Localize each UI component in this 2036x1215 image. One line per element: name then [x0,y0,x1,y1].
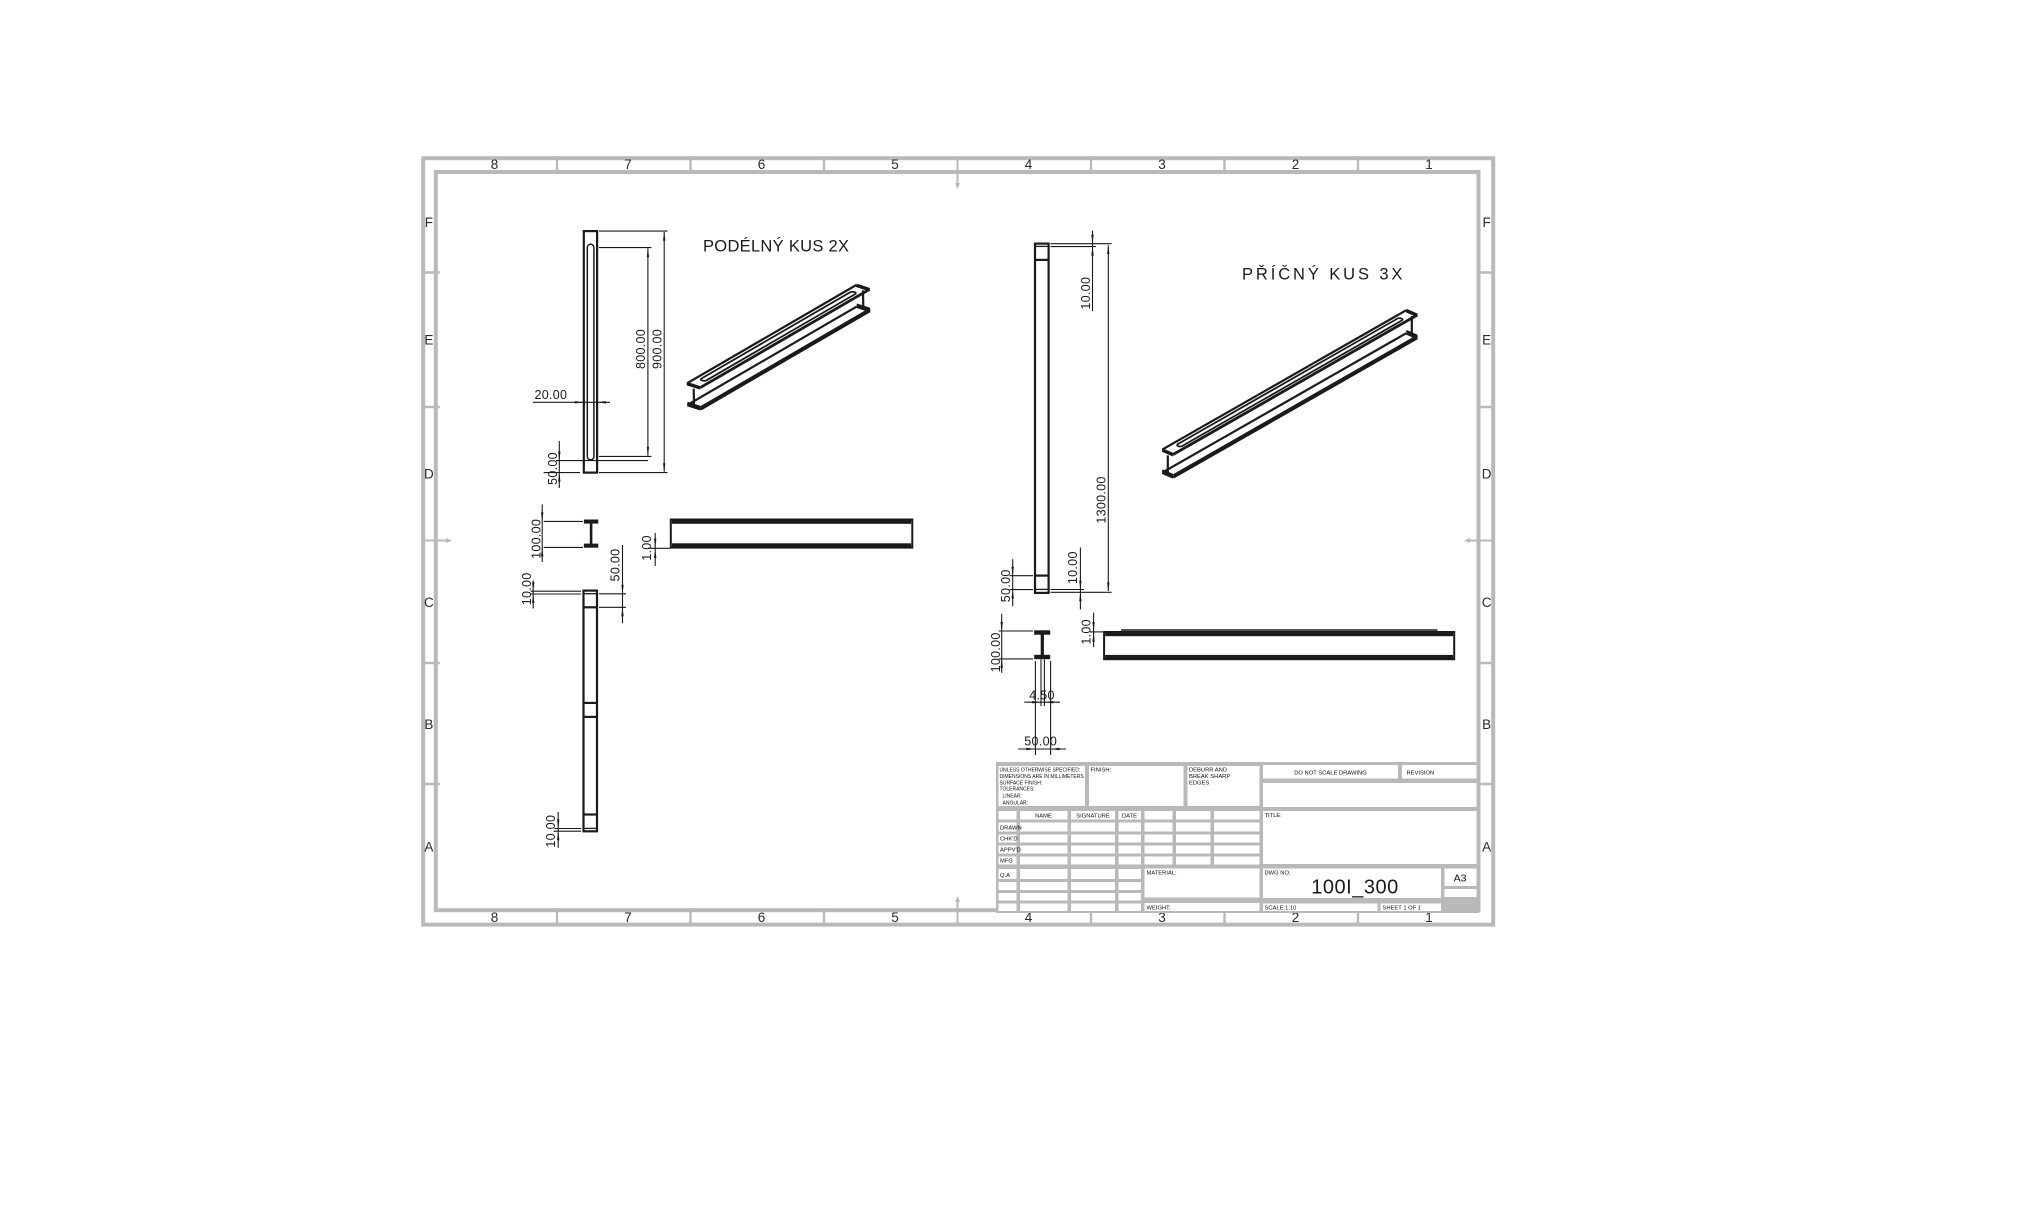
svg-text:B: B [424,717,433,732]
svg-text:UNLESS OTHERWISE SPECIFIED:: UNLESS OTHERWISE SPECIFIED: [1000,768,1081,774]
svg-text:50.00: 50.00 [999,569,1013,602]
svg-text:A: A [1482,839,1491,854]
svg-text:8: 8 [491,910,499,925]
svg-text:1.00: 1.00 [640,535,654,561]
svg-text:APPV'D: APPV'D [1000,847,1021,853]
svg-text:4: 4 [1025,157,1033,172]
svg-text:D: D [424,466,434,481]
svg-text:DATE: DATE [1122,813,1137,819]
svg-text:C: C [1482,595,1492,610]
svg-text:WEIGHT:: WEIGHT: [1147,905,1172,911]
svg-text:B: B [1482,717,1491,732]
svg-text:3: 3 [1158,157,1166,172]
svg-text:5: 5 [891,157,899,172]
svg-text:F: F [425,215,434,230]
svg-text:SHEET 1 OF 1: SHEET 1 OF 1 [1383,905,1422,911]
svg-text:PODÉLNÝ KUS 2X: PODÉLNÝ KUS 2X [703,237,849,256]
svg-text:TOLERANCES:: TOLERANCES: [1000,787,1035,793]
svg-text:6: 6 [758,157,766,172]
svg-text:50.00: 50.00 [546,452,560,485]
svg-text:2: 2 [1292,157,1300,172]
svg-text:E: E [424,332,433,347]
svg-text:REVISION: REVISION [1407,771,1435,777]
svg-text:DWG NO.: DWG NO. [1265,871,1291,877]
svg-text:DEBURR AND: DEBURR AND [1189,768,1227,774]
svg-text:FINISH:: FINISH: [1091,768,1112,774]
svg-text:10.00: 10.00 [544,815,558,848]
svg-text:50.00: 50.00 [608,549,622,582]
svg-text:F: F [1483,215,1492,230]
svg-text:ANGULAR:: ANGULAR: [1003,800,1029,806]
svg-text:100I_300: 100I_300 [1311,877,1398,899]
svg-text:A: A [424,839,433,854]
svg-text:LINEAR:: LINEAR: [1003,794,1022,800]
svg-text:NAME: NAME [1035,813,1052,819]
svg-text:SIGNATURE: SIGNATURE [1076,813,1110,819]
svg-text:DRAWN: DRAWN [1000,825,1022,831]
svg-text:C: C [424,595,434,610]
svg-text:7: 7 [624,910,632,925]
svg-text:BREAK SHARP: BREAK SHARP [1189,774,1230,780]
svg-text:20.00: 20.00 [535,388,568,402]
svg-text:7: 7 [624,157,632,172]
svg-text:10.00: 10.00 [1079,277,1093,310]
svg-text:DO NOT SCALE DRAWING: DO NOT SCALE DRAWING [1294,771,1367,777]
svg-text:EDGES: EDGES [1189,781,1209,787]
svg-text:900.00: 900.00 [650,329,664,369]
svg-text:D: D [1482,466,1492,481]
svg-text:SCALE:1:10: SCALE:1:10 [1265,905,1297,911]
svg-text:8: 8 [491,157,499,172]
svg-text:CHK'D: CHK'D [1000,836,1018,842]
svg-text:5: 5 [891,910,899,925]
svg-text:E: E [1482,332,1491,347]
svg-text:1.00: 1.00 [1080,619,1094,645]
svg-text:PŘÍČNÝ KUS 3X: PŘÍČNÝ KUS 3X [1242,265,1405,284]
svg-text:50.00: 50.00 [1024,734,1057,748]
svg-text:6: 6 [758,910,766,925]
svg-text:10.00: 10.00 [520,573,534,606]
svg-text:1300.00: 1300.00 [1095,476,1109,523]
svg-text:TITLE:: TITLE: [1265,813,1283,819]
svg-text:800.00: 800.00 [634,329,648,369]
svg-text:1: 1 [1425,157,1433,172]
svg-text:SURFACE FINISH:: SURFACE FINISH: [1000,781,1043,787]
svg-text:DIMENSIONS ARE IN MILLIMETERS: DIMENSIONS ARE IN MILLIMETERS [1000,774,1085,780]
svg-text:100.00: 100.00 [530,519,544,559]
svg-text:100.00: 100.00 [989,632,1003,672]
svg-text:10.00: 10.00 [1066,551,1080,584]
svg-text:MATERIAL:: MATERIAL: [1147,871,1178,877]
svg-text:MFG: MFG [1000,858,1013,864]
svg-text:A3: A3 [1454,873,1467,885]
svg-text:Q.A: Q.A [1000,873,1010,879]
